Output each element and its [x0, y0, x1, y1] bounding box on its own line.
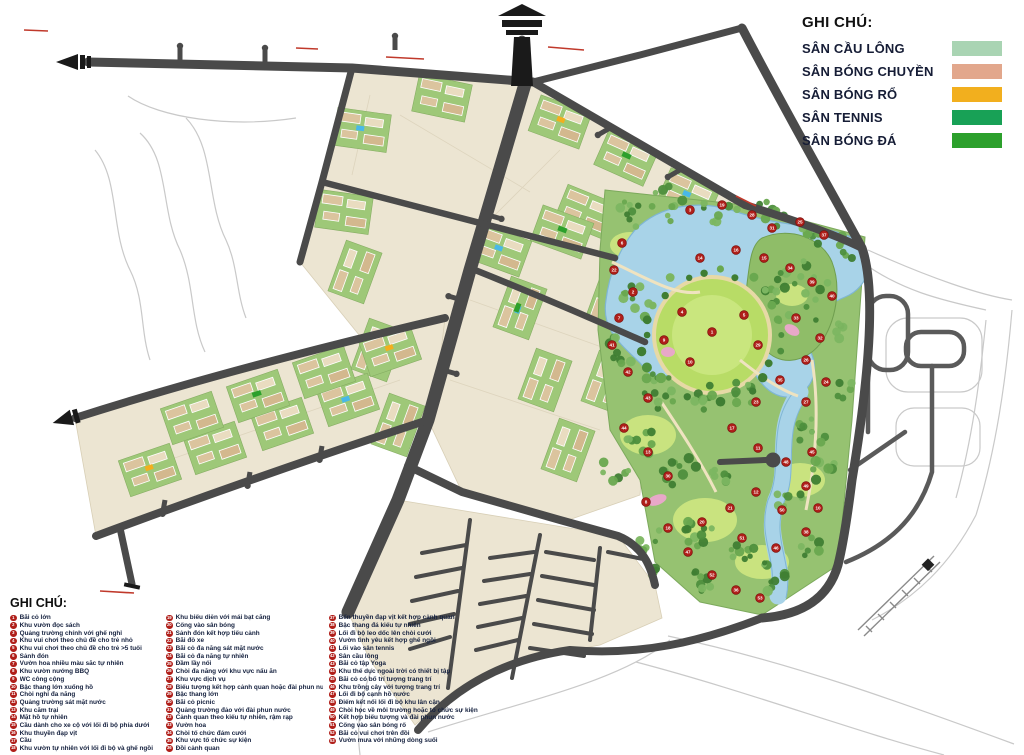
poi-marker: 26: [802, 356, 811, 365]
poi-marker: 13: [644, 448, 653, 457]
legend-note-number: 26: [166, 668, 173, 675]
legend-note-number: 6: [10, 653, 17, 660]
svg-text:27: 27: [803, 400, 809, 405]
legend-note-label: Lối đi bộ leo dốc lên chòi cưới: [339, 630, 432, 637]
legend-note-number: 24: [166, 653, 173, 660]
legend-note-label: Sảnh đón: [20, 653, 49, 660]
legend-notes-column: 1Bãi cỏ lớn2Khu vườn đọc sách3Quảng trườ…: [10, 614, 160, 752]
tree: [732, 390, 739, 397]
legend-note-number: 48: [329, 699, 336, 706]
tree: [654, 398, 663, 407]
tree: [649, 302, 657, 310]
tree: [813, 317, 819, 323]
legend-note-label: Khu vườn tự nhiên với lối đi bộ và ghế n…: [20, 745, 153, 752]
poi-marker: 16: [732, 246, 741, 255]
legend-note-number: 46: [329, 684, 336, 691]
legend-note-number: 12: [10, 699, 17, 706]
legend-sports: GHI CHÚ: SÂN CẦU LÔNGSÂN BÓNG CHUYỀNSÂN …: [802, 14, 1002, 155]
svg-text:40: 40: [829, 294, 835, 299]
legend-note-number: 39: [329, 630, 336, 637]
tree: [762, 287, 769, 294]
tree: [685, 538, 693, 546]
tree: [792, 281, 798, 287]
legend-note-number: 36: [166, 745, 173, 752]
tree: [697, 530, 707, 540]
svg-text:37: 37: [821, 233, 827, 238]
tree: [811, 456, 821, 466]
legend-note-label: Quảng trường đảo với đài phun nước: [176, 707, 291, 714]
tree: [653, 190, 659, 196]
legend-note-item: 43Bãi cỏ tập Yoga: [329, 660, 501, 668]
legend-note-item: 21Sảnh đón kết hợp tiểu cảnh: [166, 629, 323, 637]
svg-text:30: 30: [665, 474, 671, 479]
tree: [669, 481, 677, 489]
legend-note-label: Kết hợp biểu tượng và đài phun nước: [339, 714, 455, 721]
legend-note-item: 48Điểm kết nối lối đi bộ khu lân cận: [329, 699, 501, 707]
svg-text:39: 39: [809, 280, 815, 285]
tree: [622, 290, 629, 297]
legend-note-number: 53: [329, 738, 336, 745]
legend-sports-label: SÂN BÓNG ĐÁ: [802, 133, 944, 148]
legend-note-label: Bãi cỏ tập Yoga: [339, 660, 386, 667]
legend-note-item: 11Chòi nghỉ đa năng: [10, 691, 160, 699]
svg-text:29: 29: [755, 343, 761, 348]
svg-text:42: 42: [625, 370, 631, 375]
tree: [706, 583, 714, 591]
poi-marker: 36: [732, 586, 741, 595]
legend-note-number: 35: [166, 738, 173, 745]
svg-text:17: 17: [729, 426, 735, 431]
poi-marker: 48: [782, 458, 791, 467]
svg-text:47: 47: [685, 550, 691, 555]
svg-text:50: 50: [779, 508, 785, 513]
svg-text:49: 49: [803, 484, 809, 489]
tree: [763, 586, 773, 596]
road-top: [88, 62, 533, 82]
svg-text:8: 8: [645, 500, 648, 505]
tree: [835, 320, 842, 327]
legend-note-label: Biểu tượng kết hợp cảnh quan hoặc đài ph…: [176, 684, 323, 691]
tree: [777, 348, 784, 355]
legend-note-item: 5Khu vui chơi theo chủ đề cho trẻ >5 tuổ…: [10, 645, 160, 653]
legend-note-item: 51Cổng vào sân bóng rổ: [329, 722, 501, 730]
legend-note-label: Đồi cảnh quan: [176, 745, 220, 752]
tree: [681, 526, 689, 534]
railway-symbol: [858, 556, 940, 636]
svg-text:15: 15: [761, 256, 767, 261]
svg-text:21: 21: [727, 506, 733, 511]
legend-note-label: Sảnh đón kết hợp tiểu cảnh: [176, 630, 260, 637]
tree: [700, 270, 707, 277]
legend-note-number: 2: [10, 622, 17, 629]
legend-note-item: 19Khu biểu diễn với mái bạt căng: [166, 614, 323, 622]
tree: [733, 541, 741, 549]
legend-note-label: Cổng vào sân bóng: [176, 622, 235, 629]
legend-notes-columns: 1Bãi cỏ lớn2Khu vườn đọc sách3Quảng trườ…: [10, 614, 510, 752]
tree: [797, 273, 804, 280]
tree: [732, 398, 741, 407]
poi-marker: 17: [728, 424, 737, 433]
tree: [700, 200, 707, 207]
legend-note-item: 3Quảng trường chính với ghế nghỉ: [10, 629, 160, 637]
poi-marker: 46: [772, 544, 781, 553]
legend-note-number: 13: [10, 707, 17, 714]
svg-text:3: 3: [689, 208, 692, 213]
tree: [730, 554, 737, 561]
poi-marker: 23: [752, 398, 761, 407]
legend-notes-title: GHI CHÚ:: [10, 596, 510, 610]
legend-note-number: 7: [10, 661, 17, 668]
tree: [840, 249, 847, 256]
tree: [732, 379, 740, 387]
poi-marker: 38: [802, 528, 811, 537]
cul-de-sac: [766, 453, 781, 468]
tree: [706, 382, 714, 390]
legend-color-swatch: [952, 41, 1002, 56]
svg-text:34: 34: [787, 266, 793, 271]
tree: [676, 463, 682, 469]
poi-marker: 10: [814, 504, 823, 513]
tree: [809, 429, 814, 434]
legend-note-number: 20: [166, 622, 173, 629]
tree: [633, 436, 642, 445]
tree: [709, 525, 715, 531]
legend-note-number: 40: [329, 638, 336, 645]
svg-text:10: 10: [687, 360, 693, 365]
legend-note-item: 2Khu vườn đọc sách: [10, 622, 160, 630]
legend-note-item: 52Bãi cỏ vui chơi trên đồi: [329, 729, 501, 737]
legend-note-label: Vườn mưa với những dòng suối: [339, 737, 438, 744]
poi-marker: 6: [618, 239, 627, 248]
legend-note-number: 16: [10, 730, 17, 737]
legend-note-number: 43: [329, 661, 336, 668]
tree: [626, 468, 632, 474]
tree: [647, 428, 656, 437]
legend-note-number: 8: [10, 668, 17, 675]
legend-note-number: 45: [329, 676, 336, 683]
legend-sports-title: GHI CHÚ:: [802, 14, 1002, 31]
tree: [799, 423, 807, 431]
legend-note-number: 14: [10, 714, 17, 721]
legend-note-number: 11: [10, 691, 17, 698]
legend-note-number: 1: [10, 615, 17, 622]
legend-sports-label: SÂN CẦU LÔNG: [802, 41, 944, 56]
legend-note-item: 34Chòi tổ chức đám cưới: [166, 729, 323, 737]
legend-note-number: 19: [166, 615, 173, 622]
legend-sports-label: SÂN TENNIS: [802, 110, 944, 125]
svg-text:35: 35: [777, 378, 783, 383]
legend-note-number: 32: [166, 714, 173, 721]
tree: [816, 438, 825, 447]
svg-text:16: 16: [733, 248, 739, 253]
tree: [747, 554, 752, 559]
legend-note-number: 4: [10, 638, 17, 645]
svg-text:20: 20: [699, 520, 705, 525]
svg-text:44: 44: [621, 426, 627, 431]
tree: [835, 393, 842, 400]
poi-marker: 14: [696, 254, 705, 263]
legend-note-item: 16Khu thuyền đạp vịt: [10, 729, 160, 737]
legend-note-number: 51: [329, 722, 336, 729]
svg-text:33: 33: [793, 316, 799, 321]
tree: [778, 332, 784, 338]
svg-text:25: 25: [797, 220, 803, 225]
tree: [635, 203, 641, 209]
poi-marker: 5: [740, 311, 749, 320]
svg-text:53: 53: [757, 596, 763, 601]
tree: [650, 371, 656, 377]
tree: [692, 568, 699, 575]
tree: [608, 476, 618, 486]
north-arrow: [498, 4, 546, 86]
tree: [624, 211, 630, 217]
svg-text:6: 6: [621, 241, 624, 246]
legend-note-item: 36Đồi cảnh quan: [166, 745, 323, 753]
legend-notes-column: 37Bến thuyền đạp vịt kết hợp cảnh quan38…: [329, 614, 501, 745]
tree: [653, 539, 658, 544]
legend-note-number: 23: [166, 645, 173, 652]
svg-text:1: 1: [711, 330, 714, 335]
svg-text:45: 45: [809, 450, 815, 455]
legend-note-item: 12Quảng trường sát mặt nước: [10, 699, 160, 707]
legend-note-label: Cầu: [20, 737, 32, 744]
poi-marker: 12: [752, 488, 761, 497]
tree: [749, 544, 758, 553]
tree: [774, 491, 782, 499]
legend-note-label: Bậc thang lớn xuống hồ: [20, 684, 93, 691]
svg-text:18: 18: [665, 526, 671, 531]
tree: [814, 546, 824, 556]
legend-note-label: Bến thuyền đạp vịt kết hợp cảnh quan: [339, 614, 455, 621]
legend-note-item: 42Sân cầu lông: [329, 652, 501, 660]
legend-note-label: Chòi nghỉ đa năng: [20, 691, 76, 698]
legend-note-number: 34: [166, 730, 173, 737]
svg-text:9: 9: [663, 338, 666, 343]
poi-marker: 25: [796, 218, 805, 227]
poi-marker: 51: [738, 534, 747, 543]
legend-note-item: 53Vườn mưa với những dòng suối: [329, 737, 501, 745]
legend-note-item: 46Khu trồng cây với tượng trang trí: [329, 683, 501, 691]
legend-note-label: Cổng vào sân bóng rổ: [339, 722, 406, 729]
legend-note-item: 39Lối đi bộ leo dốc lên chòi cưới: [329, 629, 501, 637]
poi-marker: 27: [802, 398, 811, 407]
legend-note-item: 37Bến thuyền đạp vịt kết hợp cảnh quan: [329, 614, 501, 622]
poi-marker: 50: [778, 506, 787, 515]
legend-notes-column: 19Khu biểu diễn với mái bạt căng20Cổng v…: [166, 614, 323, 752]
tree: [814, 240, 822, 248]
tree: [796, 437, 803, 444]
legend-note-label: Quảng trường chính với ghế nghỉ: [20, 630, 122, 637]
poi-marker: 49: [802, 482, 811, 491]
legend-note-item: 20Cổng vào sân bóng: [166, 622, 323, 630]
tree: [700, 395, 707, 402]
poi-marker: 18: [664, 524, 673, 533]
tree: [729, 547, 734, 552]
legend-note-number: 5: [10, 645, 17, 652]
legend-note-item: 18Khu vườn tự nhiên với lối đi bộ và ghế…: [10, 745, 160, 753]
legend-notes: GHI CHÚ: 1Bãi cỏ lớn2Khu vườn đọc sách3Q…: [10, 596, 510, 752]
svg-text:19: 19: [719, 203, 725, 208]
tree: [742, 556, 748, 562]
legend-note-item: 17Cầu: [10, 737, 160, 745]
tree: [767, 301, 776, 310]
tree: [627, 202, 633, 208]
legend-note-number: 30: [166, 699, 173, 706]
tree: [749, 273, 758, 282]
tree: [815, 285, 825, 295]
legend-note-item: 28Biểu tượng kết hợp cảnh quan hoặc đài …: [166, 683, 323, 691]
poi-marker: 11: [754, 444, 763, 453]
legend-note-number: 29: [166, 691, 173, 698]
legend-note-item: 40Vườn tình yêu kết hợp ghế ngồi: [329, 637, 501, 645]
legend-color-swatch: [952, 64, 1002, 79]
masterplan-map: 6222741424344133081847523653319283125371…: [0, 0, 1024, 755]
legend-note-number: 52: [329, 730, 336, 737]
legend-note-item: 49Chòi học về môi trường hoặc tổ chức sự…: [329, 706, 501, 714]
tree: [649, 203, 656, 210]
tree: [835, 379, 843, 387]
legend-note-item: 15Cầu dành cho xe cộ với lối đi bộ phía …: [10, 722, 160, 730]
tree: [633, 223, 640, 230]
poi-marker: 10: [686, 358, 695, 367]
tree: [824, 279, 832, 287]
svg-text:36: 36: [733, 588, 739, 593]
tree: [798, 543, 805, 550]
legend-note-item: 26Chòi đa năng với khu vực nấu ăn: [166, 668, 323, 676]
legend-note-number: 41: [329, 645, 336, 652]
legend-note-item: 23Bãi cỏ đa năng sát mặt nước: [166, 645, 323, 653]
poi-marker: 9: [660, 336, 669, 345]
tree: [637, 347, 646, 356]
legend-note-item: 47Lối đi bộ cạnh hồ nước: [329, 691, 501, 699]
tree: [797, 490, 805, 498]
poi-marker: 52: [708, 571, 717, 580]
tree: [780, 571, 790, 581]
legend-note-label: Khu cắm trại: [20, 707, 59, 714]
tree: [733, 206, 740, 213]
legend-note-label: Khu vườn đọc sách: [20, 622, 80, 629]
tree: [765, 359, 773, 367]
legend-note-number: 50: [329, 714, 336, 721]
poi-marker: 24: [822, 378, 831, 387]
legend-note-label: Bãi cỏ vui chơi trên đồi: [339, 730, 410, 737]
legend-note-label: Chòi học về môi trường hoặc tổ chức sự k…: [339, 707, 478, 714]
tree: [667, 218, 673, 224]
legend-note-label: Vườn hoa nhiều màu sắc tự nhiên: [20, 660, 124, 667]
legend-note-item: 45Bãi cỏ có bố trí tượng trang trí: [329, 676, 501, 684]
legend-note-label: Bãi cỏ đa năng sát mặt nước: [176, 645, 264, 652]
tree: [668, 203, 675, 210]
tree: [834, 334, 844, 344]
legend-note-label: Bãi cỏ đa năng tự nhiên: [176, 653, 249, 660]
legend-note-number: 15: [10, 722, 17, 729]
tree: [717, 265, 724, 272]
poi-marker: 47: [684, 548, 693, 557]
svg-text:52: 52: [709, 573, 715, 578]
legend-note-label: Chòi tổ chức đám cưới: [176, 730, 247, 737]
legend-note-number: 22: [166, 638, 173, 645]
legend-note-item: 25Đầm lầy nổi: [166, 660, 323, 668]
legend-sports-row: SÂN TENNIS: [802, 109, 1002, 125]
legend-note-label: Lối đi bộ cạnh hồ nước: [339, 691, 410, 698]
tree: [714, 211, 723, 220]
svg-text:41: 41: [609, 343, 615, 348]
tree: [630, 303, 640, 313]
legend-note-item: 33Vườn hoa: [166, 722, 323, 730]
svg-text:4: 4: [681, 310, 684, 315]
tree: [804, 304, 810, 310]
legend-note-number: 47: [329, 691, 336, 698]
legend-note-label: Khu vui chơi theo chủ đề cho trẻ nhỏ: [20, 637, 133, 644]
legend-note-item: 9WC công cộng: [10, 676, 160, 684]
tree: [630, 296, 636, 302]
svg-text:5: 5: [743, 313, 746, 318]
legend-note-item: 35Khu vực tổ chức sự kiện: [166, 737, 323, 745]
svg-text:13: 13: [645, 450, 651, 455]
legend-note-item: 38Bậc thang đá kiểu tự nhiên: [329, 622, 501, 630]
poi-marker: 41: [608, 341, 617, 350]
tree: [848, 254, 856, 262]
legend-note-number: 28: [166, 684, 173, 691]
tree: [626, 357, 636, 367]
tree: [613, 349, 621, 357]
legend-note-number: 38: [329, 622, 336, 629]
tree: [745, 382, 751, 388]
poi-marker: 30: [664, 472, 673, 481]
legend-note-item: 44Khu thể dục ngoài trời có thiết bị tập: [329, 668, 501, 676]
poi-marker: 21: [726, 504, 735, 513]
svg-text:46: 46: [773, 546, 779, 551]
tree: [784, 492, 793, 501]
svg-text:10: 10: [815, 506, 821, 511]
tree: [758, 373, 767, 382]
legend-note-label: WC công cộng: [20, 676, 65, 683]
legend-note-number: 33: [166, 722, 173, 729]
tree: [698, 584, 706, 592]
tree: [722, 477, 731, 486]
poi-marker: 4: [678, 308, 687, 317]
poi-marker: 37: [820, 231, 829, 240]
legend-note-label: Khu biểu diễn với mái bạt căng: [176, 614, 271, 621]
tree: [731, 274, 738, 281]
tree: [801, 258, 807, 264]
legend-note-item: 24Bãi cỏ đa năng tự nhiên: [166, 652, 323, 660]
tree: [667, 386, 676, 395]
legend-sports-label: SÂN BÓNG RỔ: [802, 87, 944, 102]
tree: [678, 469, 688, 479]
tree: [656, 373, 666, 383]
legend-note-label: Bậc thang đá kiểu tự nhiên: [339, 622, 421, 629]
legend-note-label: Bãi cỏ picnic: [176, 699, 215, 706]
poi-marker: 44: [620, 424, 629, 433]
tree: [670, 398, 676, 404]
legend-note-label: Cầu dành cho xe cộ với lối đi bộ phía dư…: [20, 722, 150, 729]
tree: [643, 315, 652, 324]
tree: [749, 388, 756, 395]
legend-note-item: 13Khu cắm trại: [10, 706, 160, 714]
tree: [801, 289, 810, 298]
legend-note-label: Bãi cỏ lớn: [20, 614, 51, 621]
svg-text:43: 43: [645, 396, 651, 401]
legend-note-item: 27Khu vực dịch vụ: [166, 676, 323, 684]
tree: [648, 440, 656, 448]
legend-note-label: Khu vực dịch vụ: [176, 676, 226, 683]
tree: [814, 537, 824, 547]
legend-note-label: Bậc thang lớn: [176, 691, 219, 698]
svg-text:24: 24: [823, 380, 829, 385]
legend-note-number: 18: [10, 745, 17, 752]
poi-marker: 15: [760, 254, 769, 263]
